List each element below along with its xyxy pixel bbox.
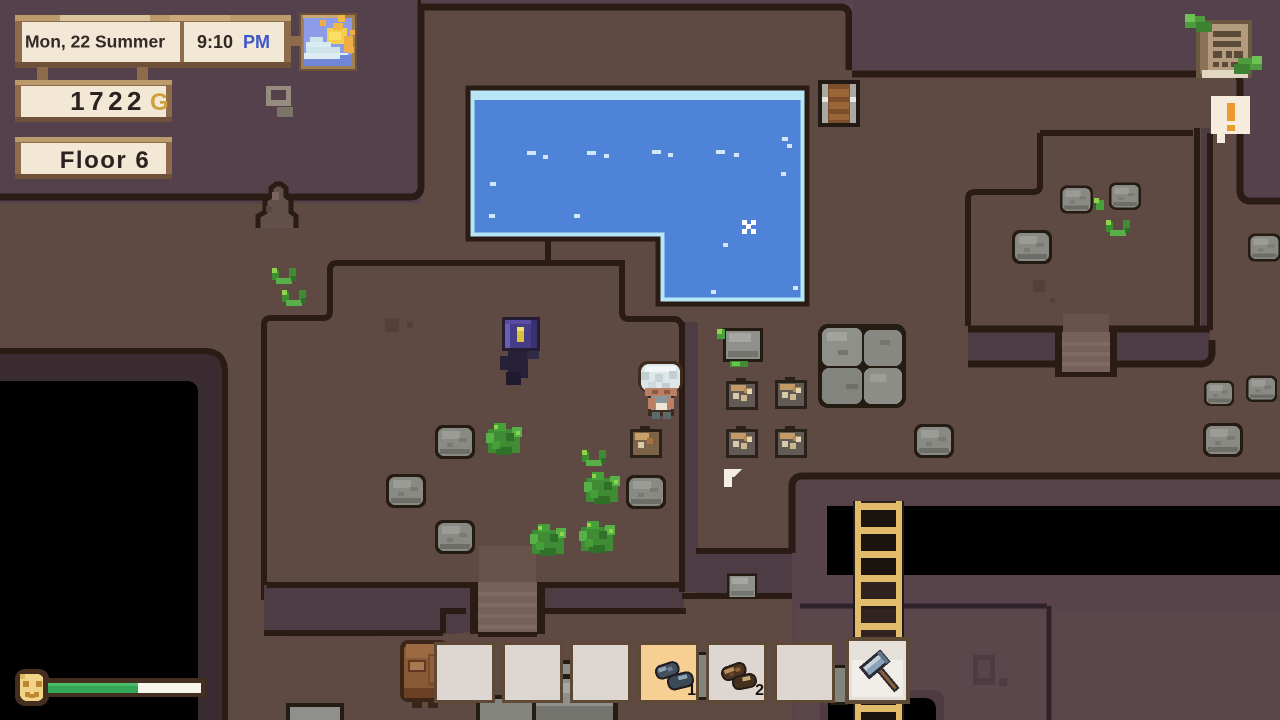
svg-text:1: 1 [687, 682, 696, 699]
svg-text:1722: 1722 [70, 86, 146, 116]
svg-text:G: G [150, 89, 169, 116]
svg-text:9:10: 9:10 [197, 32, 233, 52]
svg-text:PM: PM [243, 32, 270, 52]
svg-text:Mon, 22 Summer: Mon, 22 Summer [25, 32, 165, 52]
svg-text:Floor 6: Floor 6 [60, 147, 151, 174]
svg-text:2: 2 [755, 682, 764, 699]
